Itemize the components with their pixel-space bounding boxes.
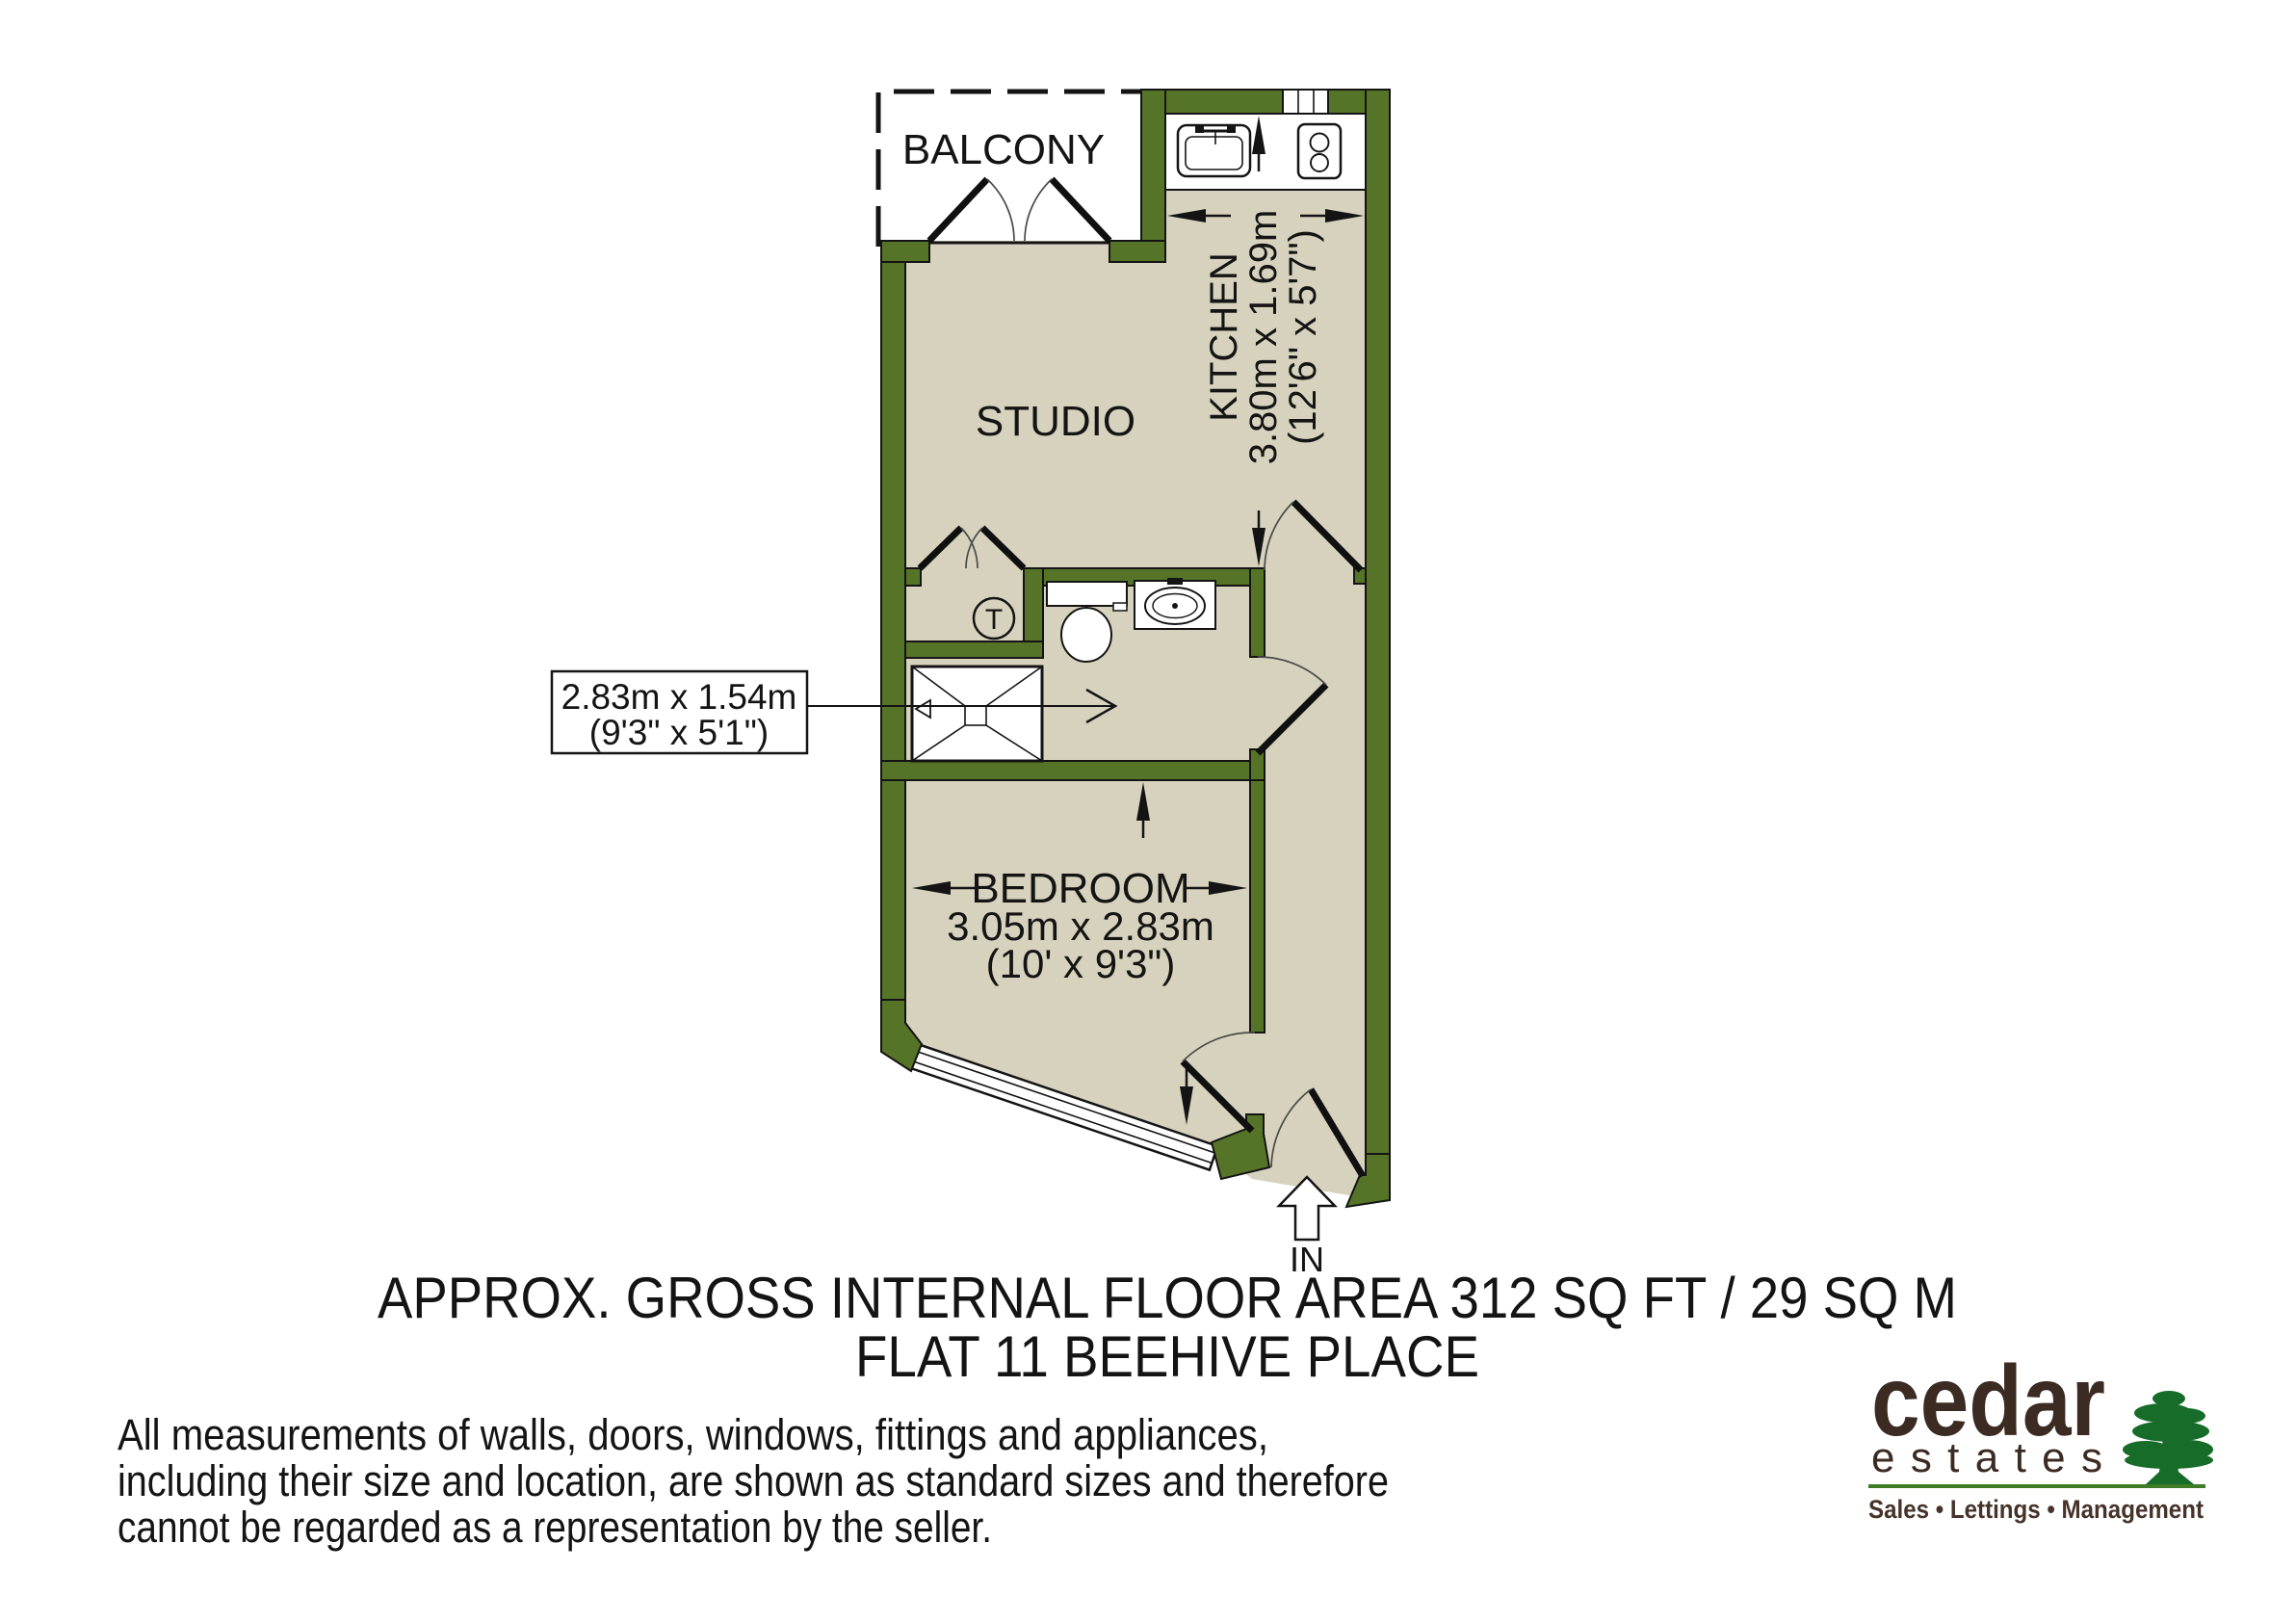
balcony-label: BALCONY	[902, 126, 1105, 173]
disclaimer-line-2: including their size and location, are s…	[117, 1456, 1389, 1505]
shower-size-imperial: (9'3" x 5'1")	[589, 713, 769, 752]
page-title-line1: APPROX. GROSS INTERNAL FLOOR AREA 312 SQ…	[378, 1266, 1957, 1330]
logo-tagline: Sales • Lettings • Management	[1868, 1495, 2204, 1524]
kitchen-sink-icon	[1178, 125, 1250, 176]
shower-icon	[912, 667, 1042, 761]
floorplan-page: T 2.83m x 1.54m (9'3" x 5'1") BALCONY S	[0, 0, 2296, 1622]
logo-tree-icon	[2123, 1391, 2213, 1484]
balcony-door-left	[929, 179, 1014, 241]
shower-size-metric: 2.83m x 1.54m	[561, 677, 797, 717]
disclaimer-line-1: All measurements of walls, doors, window…	[117, 1410, 1268, 1459]
bedroom-size-imperial: (10' x 9'3")	[986, 941, 1176, 986]
wall-bedroom-right	[1250, 780, 1265, 1033]
kitchen-window	[1283, 90, 1328, 114]
wall-top	[1141, 90, 1390, 114]
water-tank-label: T	[985, 604, 1003, 636]
agency-logo: cedar estates Sales • Lettings • Managem…	[1868, 1346, 2213, 1524]
basin-icon	[1135, 578, 1215, 629]
hob-icon	[1298, 124, 1341, 178]
wall-balcony-right	[1109, 241, 1165, 262]
studio-label: STUDIO	[976, 398, 1135, 445]
page-title-line2: FLAT 11 BEEHIVE PLACE	[855, 1324, 1479, 1389]
kitchen-size-imperial: (12'6" x 5'7")	[1282, 229, 1324, 445]
wall-bathroom-right	[1250, 568, 1265, 657]
wall-balcony-left	[881, 241, 929, 262]
kitchen-label: KITCHEN	[1203, 252, 1245, 422]
wall-kitchen-left	[1141, 90, 1165, 262]
wall-bathroom-bottom	[881, 761, 1265, 780]
kitchen-size-metric: 3.80m x 1.69m	[1242, 210, 1285, 465]
floorplan-canvas: T 2.83m x 1.54m (9'3" x 5'1") BALCONY S	[0, 0, 2296, 1622]
wall-bathroom-bottom-stub	[1250, 749, 1265, 780]
wall-right	[1366, 90, 1390, 1159]
wall-cupboard-bottom	[905, 641, 1043, 658]
disclaimer-line-3: cannot be regarded as a representation b…	[117, 1503, 992, 1552]
wall-bathroom-top-stub-left	[905, 568, 921, 586]
balcony-door-right	[1025, 179, 1109, 241]
wall-left	[881, 241, 905, 1027]
